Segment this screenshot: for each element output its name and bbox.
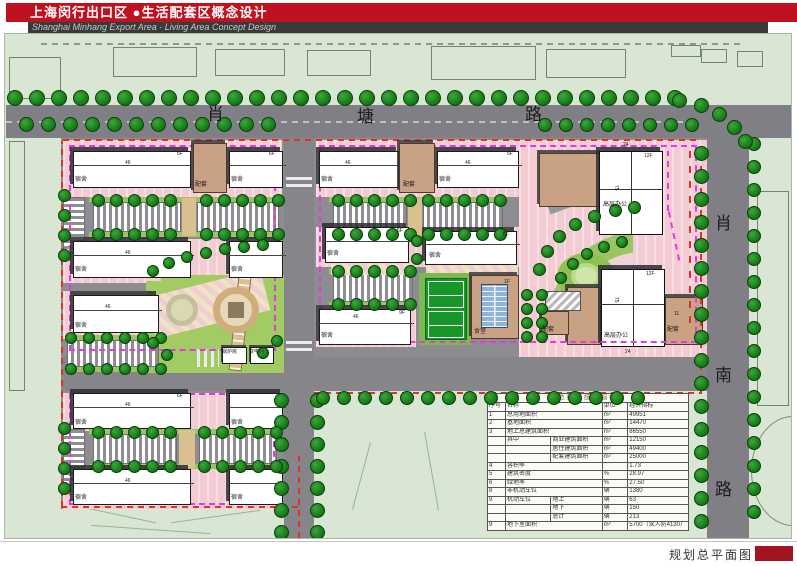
tree-icon	[254, 194, 267, 207]
tree-icon	[547, 391, 561, 405]
tree-icon	[694, 445, 709, 460]
tree-icon	[128, 228, 141, 241]
map-label: 46	[465, 161, 471, 166]
tree-icon	[368, 265, 381, 278]
tree-icon	[128, 194, 141, 207]
dorm-building	[73, 151, 191, 188]
survey-building	[431, 46, 536, 80]
tree-icon	[747, 298, 761, 312]
tree-icon	[200, 247, 212, 259]
cell-name: 总用地面积	[506, 411, 603, 420]
tree-icon	[310, 437, 325, 452]
tree-icon	[694, 399, 709, 414]
tree-icon	[747, 229, 761, 243]
tree-icon	[58, 209, 71, 222]
tree-icon	[337, 90, 353, 106]
tree-icon	[293, 90, 309, 106]
map-label: 9F	[399, 311, 405, 316]
tree-icon	[272, 228, 285, 241]
tree-icon	[161, 90, 177, 106]
tree-icon	[381, 90, 397, 106]
tree-icon	[257, 239, 269, 251]
map-label: 高层办公	[603, 202, 627, 208]
crosswalk	[286, 339, 312, 351]
tree-icon	[332, 228, 345, 241]
cell-value: 28.97	[628, 471, 689, 480]
tree-icon	[238, 241, 250, 253]
tree-icon	[694, 146, 709, 161]
tree-icon	[631, 391, 645, 405]
site-boundary	[61, 506, 299, 508]
tree-icon	[128, 460, 141, 473]
map-label: 食堂	[474, 329, 486, 335]
field-line	[91, 525, 211, 534]
tree-icon	[747, 505, 761, 519]
tree-icon	[146, 460, 159, 473]
map-label: 锅炉房	[222, 350, 237, 355]
tree-icon	[505, 391, 519, 405]
cell-value: 213	[628, 513, 689, 522]
map-label: 宿舍	[321, 333, 333, 339]
cell-no	[488, 445, 506, 454]
tree-icon	[274, 481, 289, 496]
tree-icon	[694, 307, 709, 322]
cell-no: 3	[488, 428, 506, 437]
cell-unit: %	[602, 479, 628, 488]
map-label: 46	[353, 315, 359, 320]
map-label: 46	[125, 161, 131, 166]
map-label: 宿舍	[429, 253, 441, 259]
cell-name	[506, 505, 551, 514]
tree-icon	[147, 337, 159, 349]
map-label: 宿舍	[75, 177, 87, 183]
tree-icon	[274, 503, 289, 518]
cell-name: 地下室面积	[506, 522, 603, 531]
dorm-building	[319, 309, 411, 345]
tree-icon	[164, 194, 177, 207]
tree-icon	[422, 194, 435, 207]
cell-no: 6	[488, 479, 506, 488]
tree-icon	[236, 228, 249, 241]
map-label: 6F	[269, 152, 275, 157]
cell-no: 5	[488, 471, 506, 480]
survey-building	[9, 141, 25, 391]
tree-icon	[747, 367, 761, 381]
tree-icon	[521, 303, 533, 315]
cell-no	[488, 454, 506, 463]
tree-icon	[747, 344, 761, 358]
tree-icon	[58, 229, 71, 242]
tree-icon	[205, 90, 221, 106]
cell-name: 其中	[506, 437, 551, 446]
crosswalk	[197, 349, 219, 367]
survey-building	[215, 49, 285, 76]
tree-icon	[119, 332, 131, 344]
cell-value: 1380	[628, 488, 689, 497]
tree-icon	[747, 436, 761, 450]
tree-icon	[368, 194, 381, 207]
tree-icon	[645, 90, 661, 106]
tree-icon	[359, 90, 375, 106]
tree-icon	[535, 90, 551, 106]
tree-icon	[65, 332, 77, 344]
site-boundary	[63, 139, 701, 141]
tree-icon	[261, 117, 276, 132]
tree-icon	[139, 90, 155, 106]
tree-icon	[274, 437, 289, 452]
tree-icon	[58, 482, 71, 495]
tree-icon	[332, 265, 345, 278]
cell-name: 容积率	[506, 462, 603, 471]
cell-unit: m²	[602, 437, 628, 446]
tree-icon	[747, 275, 761, 289]
cell-value: 25000	[628, 454, 689, 463]
tree-icon	[694, 98, 709, 113]
map-label: 6F	[507, 152, 513, 157]
tree-icon	[95, 90, 111, 106]
tree-icon	[738, 134, 753, 149]
tree-icon	[458, 228, 471, 241]
tree-icon	[92, 426, 105, 439]
tree-icon	[146, 194, 159, 207]
survey-building	[671, 45, 701, 57]
footer-red-block	[755, 546, 793, 561]
tree-icon	[484, 391, 498, 405]
tree-icon	[117, 90, 133, 106]
tree-icon	[181, 251, 193, 263]
tree-icon	[236, 194, 249, 207]
cell-no: 9	[488, 496, 506, 505]
cell-name	[506, 454, 551, 463]
tree-icon	[569, 218, 582, 231]
cell-name: 基地面积	[506, 420, 603, 429]
tree-icon	[315, 90, 331, 106]
cell-subname: 居住建筑面积	[551, 445, 602, 454]
tree-icon	[58, 442, 71, 455]
field-line	[352, 442, 371, 510]
cell-name	[506, 445, 551, 454]
cell-value: 49951	[628, 411, 689, 420]
cell-subname: 地下	[551, 505, 602, 514]
tree-icon	[526, 391, 540, 405]
tree-icon	[411, 253, 423, 265]
survey-building	[737, 51, 763, 67]
cell-unit: m²	[602, 420, 628, 429]
tree-icon	[422, 228, 435, 241]
dorm-building	[73, 469, 191, 505]
field-line	[424, 432, 439, 511]
tree-icon	[332, 298, 345, 311]
cell-no: 1	[488, 411, 506, 420]
map-label: 75	[613, 297, 618, 303]
tree-icon	[694, 376, 709, 391]
tree-icon	[65, 363, 77, 375]
tree-icon	[622, 118, 636, 132]
page: 上海闵行出口区 ●生活配套区概念设计 Shanghai Minhang Expo…	[0, 0, 797, 566]
crosswalk	[286, 175, 312, 187]
cell-unit: 辆	[602, 513, 628, 522]
tree-icon	[92, 228, 105, 241]
tree-icon	[310, 459, 325, 474]
tree-icon	[425, 90, 441, 106]
tree-icon	[694, 192, 709, 207]
tree-icon	[198, 426, 211, 439]
tree-icon	[404, 194, 417, 207]
tree-icon	[29, 90, 45, 106]
tree-icon	[200, 228, 213, 241]
tree-icon	[404, 298, 417, 311]
map-label: 46	[345, 161, 351, 166]
tree-icon	[616, 236, 628, 248]
map-label: 路	[525, 106, 542, 123]
tree-icon	[601, 90, 617, 106]
tree-icon	[92, 194, 105, 207]
tree-icon	[411, 235, 423, 247]
map-label: 12F	[644, 154, 653, 159]
tree-icon	[101, 363, 113, 375]
map-label: 11	[674, 312, 679, 317]
cell-value: 86550	[628, 428, 689, 437]
tree-icon	[386, 298, 399, 311]
field-line	[171, 510, 260, 524]
tree-icon	[216, 426, 229, 439]
tree-icon	[400, 391, 414, 405]
tree-icon	[476, 228, 489, 241]
map-label: 6F	[177, 152, 183, 157]
tree-icon	[580, 118, 594, 132]
survey-building	[307, 50, 371, 76]
tree-icon	[146, 426, 159, 439]
tree-icon	[107, 117, 122, 132]
tree-icon	[747, 252, 761, 266]
tree-icon	[598, 241, 610, 253]
tree-icon	[83, 363, 95, 375]
map-label: 46	[125, 251, 131, 256]
cell-name: 地上总建筑面积	[506, 428, 603, 437]
tree-icon	[694, 422, 709, 437]
tree-icon	[58, 189, 71, 202]
tree-icon	[271, 335, 283, 347]
map-label: 配套	[403, 182, 415, 188]
tree-icon	[694, 238, 709, 253]
tree-icon	[239, 117, 254, 132]
tree-icon	[747, 459, 761, 473]
tree-icon	[521, 317, 533, 329]
cell-value: 49400	[628, 445, 689, 454]
map-label: 宿舍	[321, 177, 333, 183]
map-label: 宿舍	[327, 251, 339, 257]
tree-icon	[350, 194, 363, 207]
map-label: 配套	[667, 327, 679, 333]
map-label: 塘	[357, 108, 374, 125]
tree-icon	[73, 90, 89, 106]
map-label: 24	[623, 143, 629, 148]
page-subtitle: Shanghai Minhang Export Area · Living Ar…	[28, 22, 768, 33]
tree-icon	[110, 194, 123, 207]
tree-icon	[249, 90, 265, 106]
tree-icon	[694, 215, 709, 230]
tree-icon	[368, 298, 381, 311]
tree-icon	[541, 245, 554, 258]
tree-icon	[163, 257, 175, 269]
cell-no: 8	[488, 488, 506, 497]
tree-icon	[218, 194, 231, 207]
road-right	[707, 138, 749, 539]
tree-icon	[227, 90, 243, 106]
survey-line	[41, 43, 741, 45]
map-label: 宿舍	[75, 267, 87, 273]
cell-unit: 辆	[602, 488, 628, 497]
indicators-grid: 总经济技术指标序号名称单位经济指标1总用地面积m²499512基地面积m²144…	[487, 393, 689, 531]
tree-icon	[601, 118, 615, 132]
survey-building	[701, 49, 727, 63]
tree-icon	[747, 206, 761, 220]
tree-icon	[559, 118, 573, 132]
cell-value: 63	[628, 496, 689, 505]
tree-icon	[316, 391, 330, 405]
map-label: 变电间	[249, 350, 264, 355]
cell-subname: 地上	[551, 496, 602, 505]
tree-icon	[234, 460, 247, 473]
cell-value: 150	[628, 505, 689, 514]
tree-icon	[494, 194, 507, 207]
tree-icon	[458, 194, 471, 207]
map-label: 宿舍	[231, 177, 243, 183]
tree-icon	[271, 90, 287, 106]
tree-icon	[643, 118, 657, 132]
tree-icon	[533, 263, 546, 276]
tree-icon	[747, 390, 761, 404]
tree-icon	[164, 426, 177, 439]
tree-icon	[310, 415, 325, 430]
tree-icon	[447, 90, 463, 106]
map-label: 宿舍	[75, 420, 87, 426]
tree-icon	[151, 117, 166, 132]
cell-value: 14470	[628, 420, 689, 429]
tree-icon	[51, 90, 67, 106]
tree-icon	[463, 391, 477, 405]
cell-name: 机动车位	[506, 496, 551, 505]
survey-building	[757, 191, 789, 406]
footer-divider	[0, 541, 797, 542]
tree-icon	[198, 460, 211, 473]
tree-icon	[694, 514, 709, 529]
tree-icon	[557, 90, 573, 106]
cell-subname: 总计	[551, 513, 602, 522]
tree-icon	[147, 265, 159, 277]
tree-icon	[440, 194, 453, 207]
tree-icon	[164, 460, 177, 473]
tree-icon	[173, 117, 188, 132]
page-title: 上海闵行出口区 ●生活配套区概念设计	[6, 3, 797, 22]
dorm-building	[73, 393, 191, 429]
cell-name: 非机动车位	[506, 488, 603, 497]
tree-icon	[350, 298, 363, 311]
tree-icon	[161, 349, 173, 361]
tree-icon	[536, 289, 548, 301]
tree-icon	[85, 117, 100, 132]
tree-icon	[491, 90, 507, 106]
tree-icon	[63, 117, 78, 132]
map-label: 肖	[207, 106, 224, 123]
tree-icon	[553, 230, 566, 243]
tree-icon	[137, 363, 149, 375]
map-label: 宿舍	[231, 420, 243, 426]
cell-subname: 商业建筑面积	[551, 437, 602, 446]
tree-icon	[379, 391, 393, 405]
map-label: 配套	[195, 182, 207, 188]
cell-unit: m²	[602, 445, 628, 454]
cell-unit: 辆	[602, 496, 628, 505]
tree-icon	[567, 258, 579, 270]
tree-icon	[476, 194, 489, 207]
tree-icon	[513, 90, 529, 106]
cell-unit	[602, 462, 628, 471]
cell-no: 2	[488, 420, 506, 429]
map-label: 宿舍	[439, 177, 451, 183]
map-label: 24	[625, 350, 631, 355]
tree-icon	[747, 413, 761, 427]
indicators-table: 总经济技术指标序号名称单位经济指标1总用地面积m²499512基地面积m²144…	[487, 393, 689, 531]
tree-icon	[694, 468, 709, 483]
tree-icon	[270, 426, 283, 439]
map-label: 高层办公	[604, 333, 628, 339]
tree-icon	[694, 491, 709, 506]
tree-icon	[694, 169, 709, 184]
tree-icon	[581, 248, 593, 260]
tree-icon	[712, 107, 727, 122]
tree-icon	[368, 228, 381, 241]
map-label: 宿舍	[75, 323, 87, 329]
tree-icon	[403, 90, 419, 106]
tree-icon	[216, 460, 229, 473]
tree-icon	[589, 391, 603, 405]
tree-icon	[727, 120, 742, 135]
tree-icon	[588, 210, 601, 223]
glass-roof	[481, 284, 508, 328]
tree-icon	[200, 194, 213, 207]
map-label: 75	[613, 185, 618, 191]
tree-icon	[274, 393, 289, 408]
cell-no	[488, 437, 506, 446]
tree-icon	[579, 90, 595, 106]
tree-icon	[58, 462, 71, 475]
map-label: 5F	[503, 233, 509, 238]
tree-icon	[358, 391, 372, 405]
tree-icon	[83, 332, 95, 344]
tree-icon	[110, 228, 123, 241]
map-label: 46	[125, 403, 131, 408]
tree-icon	[272, 194, 285, 207]
tree-icon	[350, 265, 363, 278]
tree-icon	[404, 265, 417, 278]
tree-icon	[386, 265, 399, 278]
tree-icon	[694, 330, 709, 345]
tree-icon	[694, 353, 709, 368]
tree-icon	[41, 117, 56, 132]
map-label: 5F	[397, 229, 403, 234]
cell-value: 12150	[628, 437, 689, 446]
tree-icon	[747, 321, 761, 335]
cell-unit: m²	[602, 454, 628, 463]
cell-unit: %	[602, 471, 628, 480]
tree-icon	[610, 391, 624, 405]
cell-unit: m²	[602, 411, 628, 420]
map-label: 6F	[177, 394, 183, 399]
tree-icon	[310, 481, 325, 496]
cell-name: 建筑密度	[506, 471, 603, 480]
cell-no: 4	[488, 462, 506, 471]
